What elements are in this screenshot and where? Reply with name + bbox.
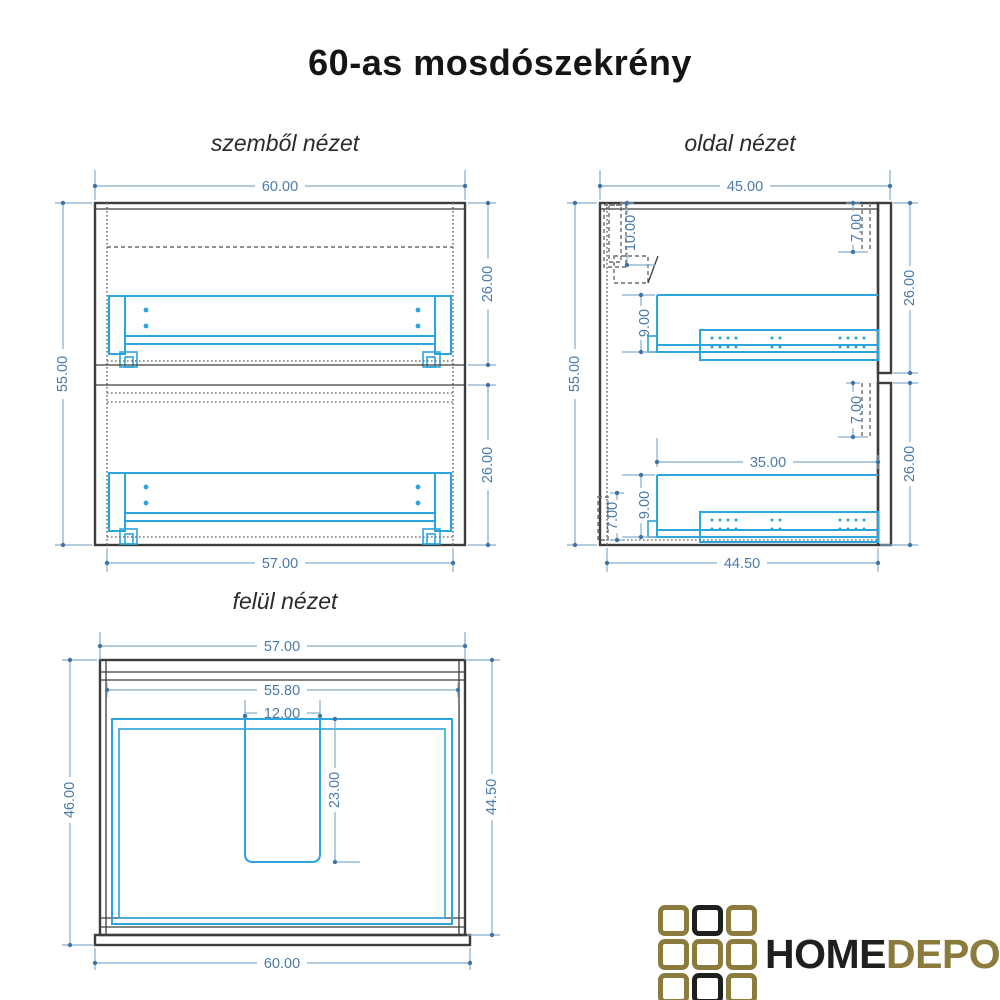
logo-square [726, 905, 757, 936]
front-carcass [95, 203, 465, 545]
dim-label: 26.00 [902, 446, 918, 482]
top-dim-cutout-depth: 23.00 [327, 717, 360, 864]
dim-label: 12.00 [264, 706, 300, 722]
dim-label: 45.00 [727, 179, 763, 195]
dim-label: 7.00 [849, 396, 865, 424]
front-dim-section-lower: 26.00 [468, 383, 496, 547]
side-dim-rail-upper: 9.00 [622, 293, 655, 354]
rail-holes-upper [711, 337, 866, 349]
logo-square [692, 939, 723, 970]
front-dim-height-left: 55.00 [55, 201, 92, 547]
top-dim-width-inner: 55.80 [105, 683, 460, 699]
dim-label: 7.00 [849, 214, 865, 242]
side-dim-front-inset-middle: 7.00 [838, 381, 868, 439]
dim-label: 35.00 [750, 455, 786, 471]
top-countertop-edge [95, 935, 470, 945]
logo-square [658, 939, 689, 970]
top-view: 57.00 55.80 12.00 [62, 632, 500, 972]
dim-label: 60.00 [264, 956, 300, 972]
front-dim-section-upper: 26.00 [468, 201, 496, 367]
logo-square [692, 973, 723, 1000]
logo-square [658, 973, 689, 1000]
dim-label: 55.80 [264, 683, 300, 699]
dim-label: 44.50 [484, 779, 500, 815]
dim-label: 57.00 [262, 556, 298, 572]
logo-grid-icon [658, 905, 757, 1000]
side-view: 45.00 55.00 10.00 [567, 170, 918, 572]
drawing-sheet: 60-as mosdószekrény szemből nézet oldal … [0, 0, 1000, 1000]
side-dim-back-rail: 7.00 [605, 491, 624, 542]
front-lower-drawer [109, 473, 451, 544]
dim-label: 10.00 [623, 215, 639, 251]
rail-holes-lower [711, 519, 866, 531]
dim-label: 46.00 [62, 782, 78, 818]
side-dim-section-upper: 26.00 [893, 201, 918, 375]
top-interior-outline [112, 719, 452, 924]
siphon-cutout [245, 719, 320, 862]
top-dim-depth-left: 46.00 [62, 658, 97, 947]
side-dim-rail-length: 35.00 [655, 438, 880, 471]
logo-square [726, 973, 757, 1000]
side-dim-rail-lower: 9.00 [622, 473, 655, 539]
dim-label: 55.00 [55, 356, 71, 392]
dim-label: 60.00 [262, 179, 298, 195]
top-dim-depth-right: 44.50 [467, 658, 500, 937]
technical-drawing: 60.00 55.00 26.00 [0, 0, 1000, 1000]
side-dim-section-lower: 26.00 [880, 381, 918, 547]
logo-square [726, 939, 757, 970]
dim-label: 26.00 [902, 270, 918, 306]
dim-label: 55.00 [567, 356, 583, 392]
dim-label: 23.00 [327, 772, 343, 808]
brand-name: HOMEDEPO [765, 931, 1000, 978]
side-dim-bracket: 10.00 [620, 201, 639, 267]
front-upper-drawer [109, 296, 451, 367]
side-upper-drawer [648, 295, 878, 360]
brand-secondary: DEPO [886, 931, 1000, 977]
homedepo-logo: HOMEDEPO [658, 905, 998, 1000]
front-dim-width-top: 60.00 [93, 170, 467, 200]
dim-label: 57.00 [264, 639, 300, 655]
dim-label: 44.50 [724, 556, 760, 572]
dim-label: 7.00 [605, 502, 621, 530]
side-front-panel-upper [878, 203, 891, 373]
dim-label: 26.00 [480, 447, 496, 483]
top-carcass [100, 660, 465, 935]
top-dim-width-bottom: 60.00 [93, 948, 472, 972]
side-dim-depth-top: 45.00 [598, 170, 892, 200]
side-dim-depth-bottom: 44.50 [605, 548, 880, 572]
dim-label: 26.00 [480, 266, 496, 302]
top-dim-width-top: 57.00 [98, 632, 467, 660]
side-front-panel-lower [878, 383, 891, 545]
side-lower-drawer [648, 475, 878, 542]
side-dim-height-left: 55.00 [567, 201, 597, 547]
brand-primary: HOME [765, 931, 886, 977]
logo-square [692, 905, 723, 936]
front-dim-width-bottom: 57.00 [105, 548, 455, 572]
dim-label: 9.00 [637, 309, 653, 337]
front-view: 60.00 55.00 26.00 [55, 170, 496, 572]
dim-label: 9.00 [637, 491, 653, 519]
logo-square [658, 905, 689, 936]
